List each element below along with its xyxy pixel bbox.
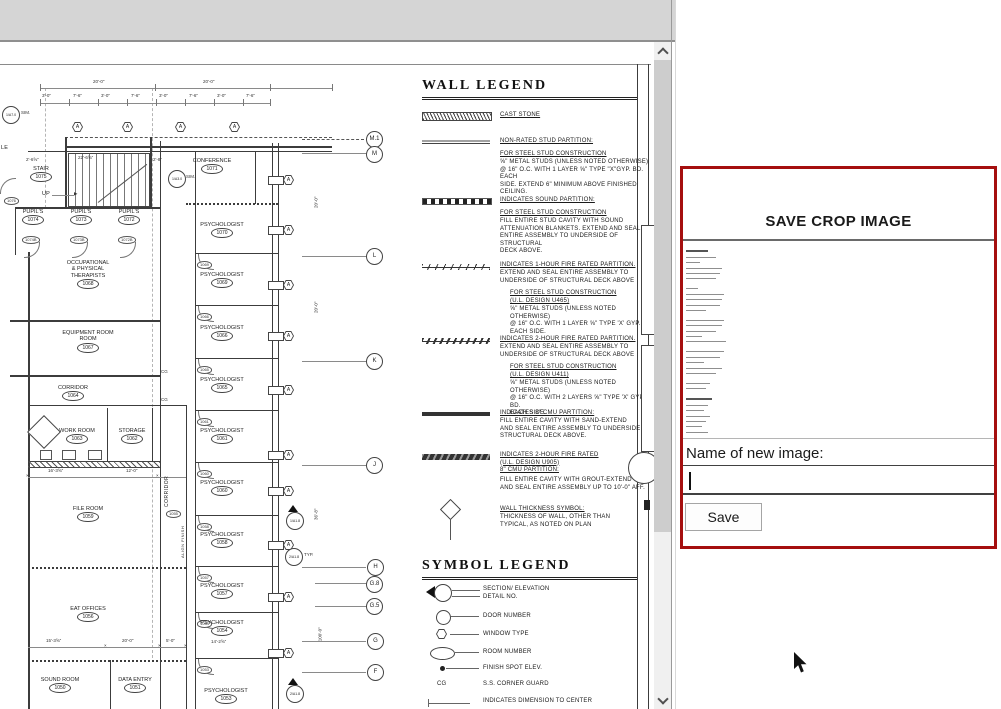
detail-marker: 1/A1.8 (286, 512, 304, 530)
room-label: STORAGE1062 (112, 428, 152, 444)
stair-hatch (68, 153, 150, 207)
detail-marker: 2/A1.8 (285, 548, 303, 566)
room-label: PSYCHOLOGIST1057 (196, 583, 248, 599)
image-name-label: Name of new image: (686, 445, 824, 462)
plan-note: ALIGN FINISH (180, 508, 185, 558)
save-crop-panel: SAVE CROP IMAGE Name of (680, 166, 997, 549)
room-number-icon (430, 647, 455, 660)
room-label: PUPIL'S1072 (112, 209, 146, 225)
scroll-up-button[interactable] (654, 42, 671, 59)
room-label: PSYCHOLOGIST1069 (196, 272, 248, 288)
room-number: 1055 (166, 510, 181, 518)
save-button[interactable]: Save (685, 503, 762, 531)
right-pane: SAVE CROP IMAGE Name of (676, 0, 1001, 709)
panel-title: SAVE CROP IMAGE (683, 213, 994, 230)
stair-up-label: UP (42, 191, 50, 197)
room-label: CORRIDOR (164, 465, 170, 507)
corner-guard-icon: CG (437, 681, 446, 688)
room-label: DATA ENTRY1051 (112, 677, 158, 693)
room-label: PSYCHOLOGIST1060 (196, 480, 248, 496)
room-label: PSYCHOLOGIST1070 (196, 222, 248, 238)
pane-divider (675, 0, 676, 709)
room-label: PSYCHOLOGIST1053 (200, 688, 252, 704)
text-caret (689, 472, 691, 490)
crop-thumbnail-content (686, 246, 742, 433)
detail-marker: 2/A1.8 (286, 685, 304, 703)
floor-plan-drawing[interactable]: 20'-0" 20'-0" 3'-0" 7'-6" 3'-0" 7'-6" 3'… (0, 0, 654, 709)
room-label: PSYCHOLOGIST1061 (196, 428, 248, 444)
room-label: FILE ROOM1059 (64, 506, 112, 522)
scrollbar-thumb[interactable] (654, 60, 671, 532)
room-label: PSYCHOLOGIST1066 (196, 325, 248, 341)
room-label: OCCUPATIONAL & PHYSICAL THERAPISTS1068 (60, 260, 116, 289)
room-label: PUPIL'S1073 (64, 209, 98, 225)
spot-elev-icon (440, 666, 445, 671)
room-label: EQUIPMENT ROOM ROOM1067 (56, 330, 120, 353)
image-name-input[interactable] (683, 466, 994, 495)
app-window: 20'-0" 20'-0" 3'-0" 7'-6" 3'-0" 7'-6" 3'… (0, 0, 1001, 709)
room-label: PSYCHOLOGIST1054 (196, 620, 248, 636)
crop-preview-image (683, 241, 994, 439)
door-number-icon (436, 610, 451, 625)
room-label: CORRIDOR1064 (50, 385, 96, 401)
chevron-down-icon (657, 693, 668, 704)
pane-divider (671, 0, 672, 709)
chevron-up-icon (657, 47, 668, 58)
viewer-top-bar (0, 0, 676, 42)
room-label: STAIR1075 (24, 166, 58, 182)
window-type-icon (436, 629, 447, 639)
room-label: PUPIL'S1074 (16, 209, 50, 225)
section-marker-icon (434, 584, 452, 602)
room-label: EAT OFFICES1056 (62, 606, 114, 622)
mouse-cursor-icon (793, 652, 808, 674)
detail-marker: 1/A3.0 (168, 170, 186, 188)
room-label: SOUND ROOM1050 (36, 677, 84, 693)
room-label: WORK ROOM1063 (54, 428, 100, 444)
scroll-down-button[interactable] (654, 692, 671, 709)
room-label: PSYCHOLOGIST1058 (196, 532, 248, 548)
vertical-scrollbar[interactable] (654, 42, 671, 709)
room-label: CONFERENCE1071 (186, 158, 238, 174)
detail-marker: 1/A7.0 (2, 106, 20, 124)
room-label: PSYCHOLOGIST1065 (196, 377, 248, 393)
